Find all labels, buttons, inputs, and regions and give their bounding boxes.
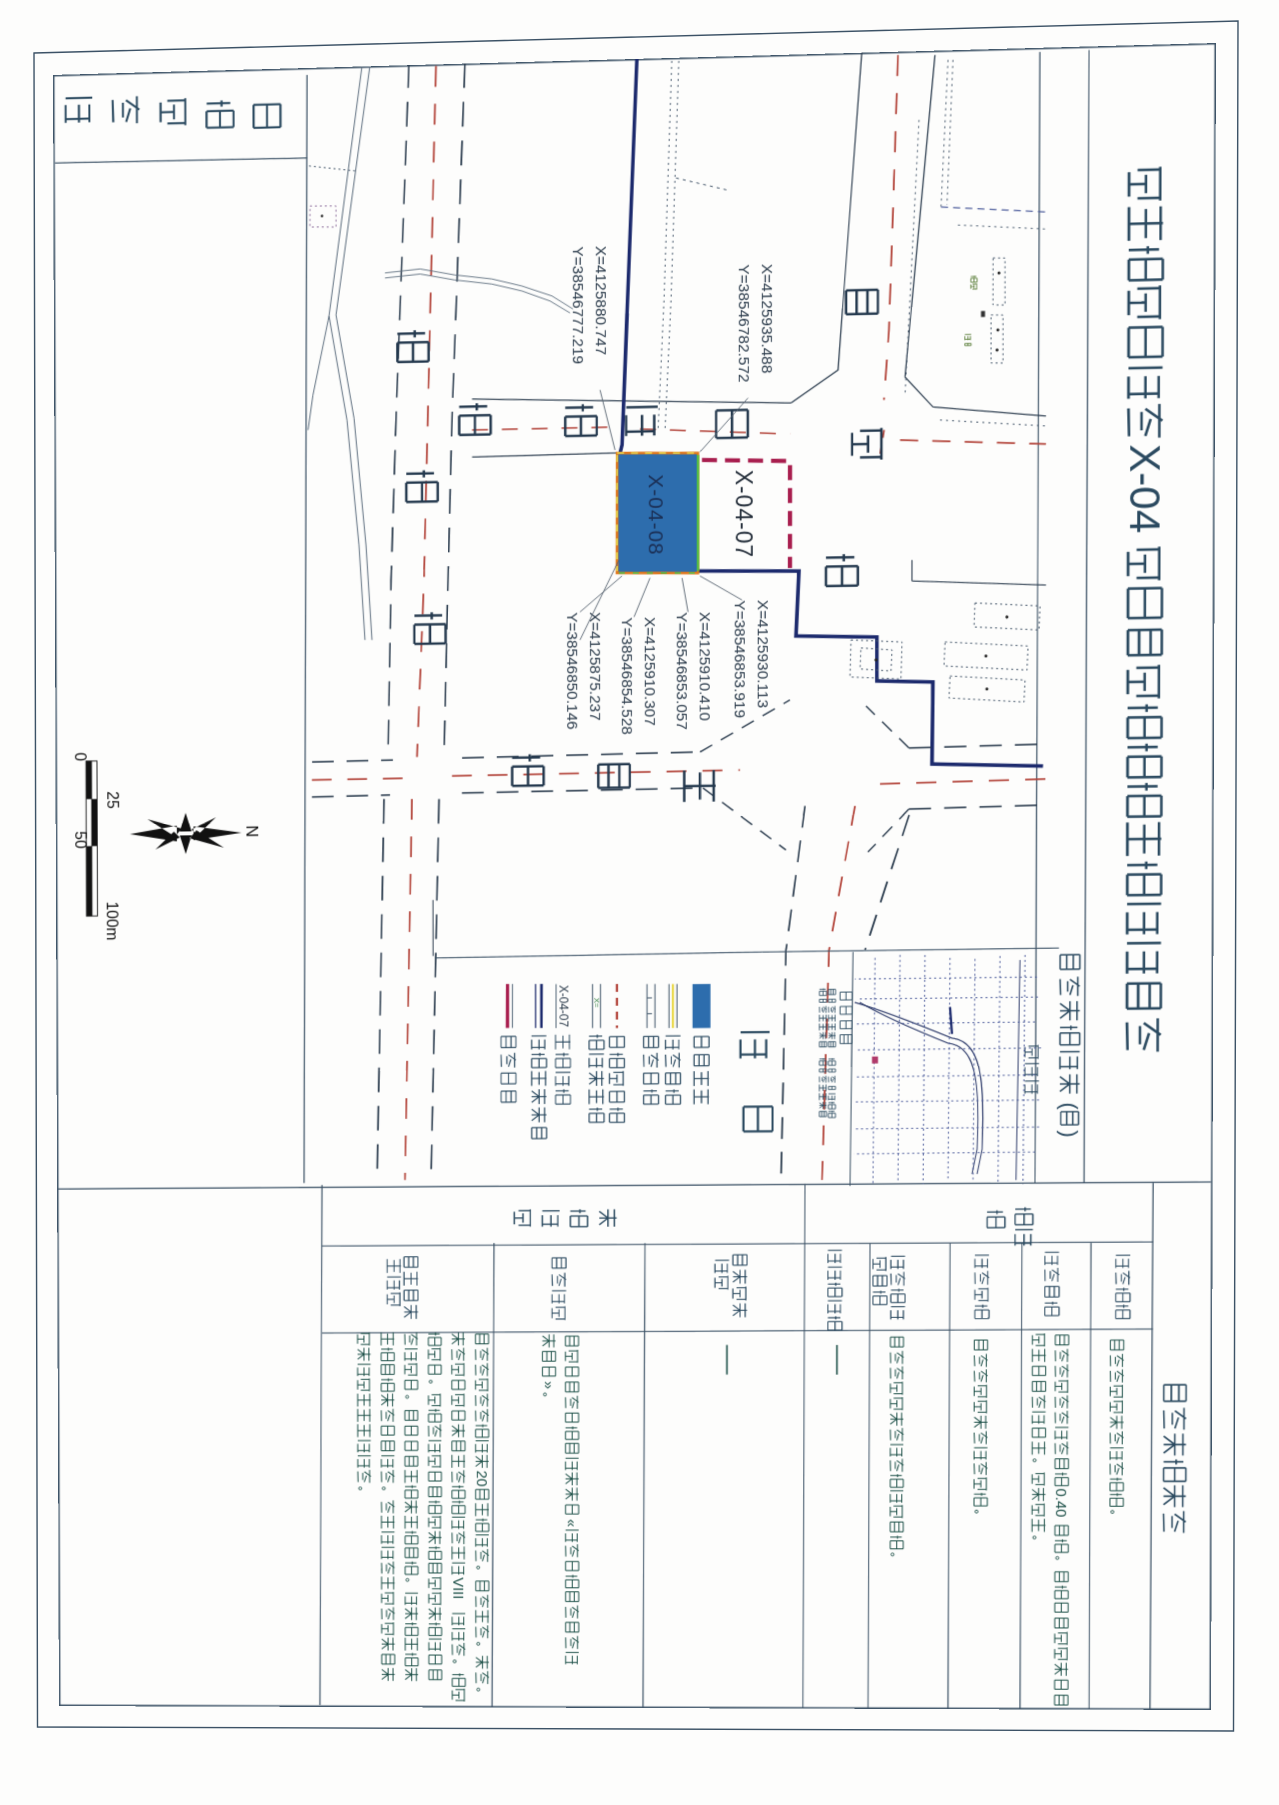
svg-text:X=4125910.307: X=4125910.307 [641,617,658,726]
svg-text:X=4125880.747: X=4125880.747 [592,246,609,356]
svg-text:(: ( [1057,1102,1082,1110]
svg-text:Y=38546782.572: Y=38546782.572 [735,264,752,383]
svg-text:20: 20 [473,1470,490,1486]
svg-text:100m: 100m [103,901,121,940]
svg-text:X=4125910.410: X=4125910.410 [696,612,713,722]
svg-text:X=4125930.113: X=4125930.113 [754,600,771,708]
svg-text:0: 0 [71,752,89,761]
svg-text:X=4125935.488: X=4125935.488 [758,264,775,374]
svg-text:0.40: 0.40 [1052,1488,1069,1517]
svg-text:Y=38546853.057: Y=38546853.057 [673,612,690,730]
svg-text:X-04-07: X-04-07 [556,985,570,1028]
svg-text:N: N [243,825,262,837]
svg-text:»: » [540,1381,557,1389]
svg-text:25: 25 [103,791,121,809]
svg-text:«: « [563,1519,580,1527]
svg-text:X=4125875.237: X=4125875.237 [586,612,603,721]
svg-text:Y=38546777.219: Y=38546777.219 [569,246,586,364]
svg-text:X-04-07: X-04-07 [731,470,757,559]
svg-text:X-04: X-04 [1121,444,1169,534]
svg-text:VIII: VIII [449,1577,466,1599]
svg-text:Y=38546853.919: Y=38546853.919 [731,600,748,718]
svg-text:Y=38546850.146: Y=38546850.146 [563,612,580,730]
svg-text:50: 50 [71,831,89,849]
svg-text:X-04-08: X-04-08 [644,474,667,556]
svg-text:Y=38546854.528: Y=38546854.528 [618,617,635,735]
svg-text:): ) [1056,1130,1081,1137]
svg-text:X=: X= [593,998,602,1008]
